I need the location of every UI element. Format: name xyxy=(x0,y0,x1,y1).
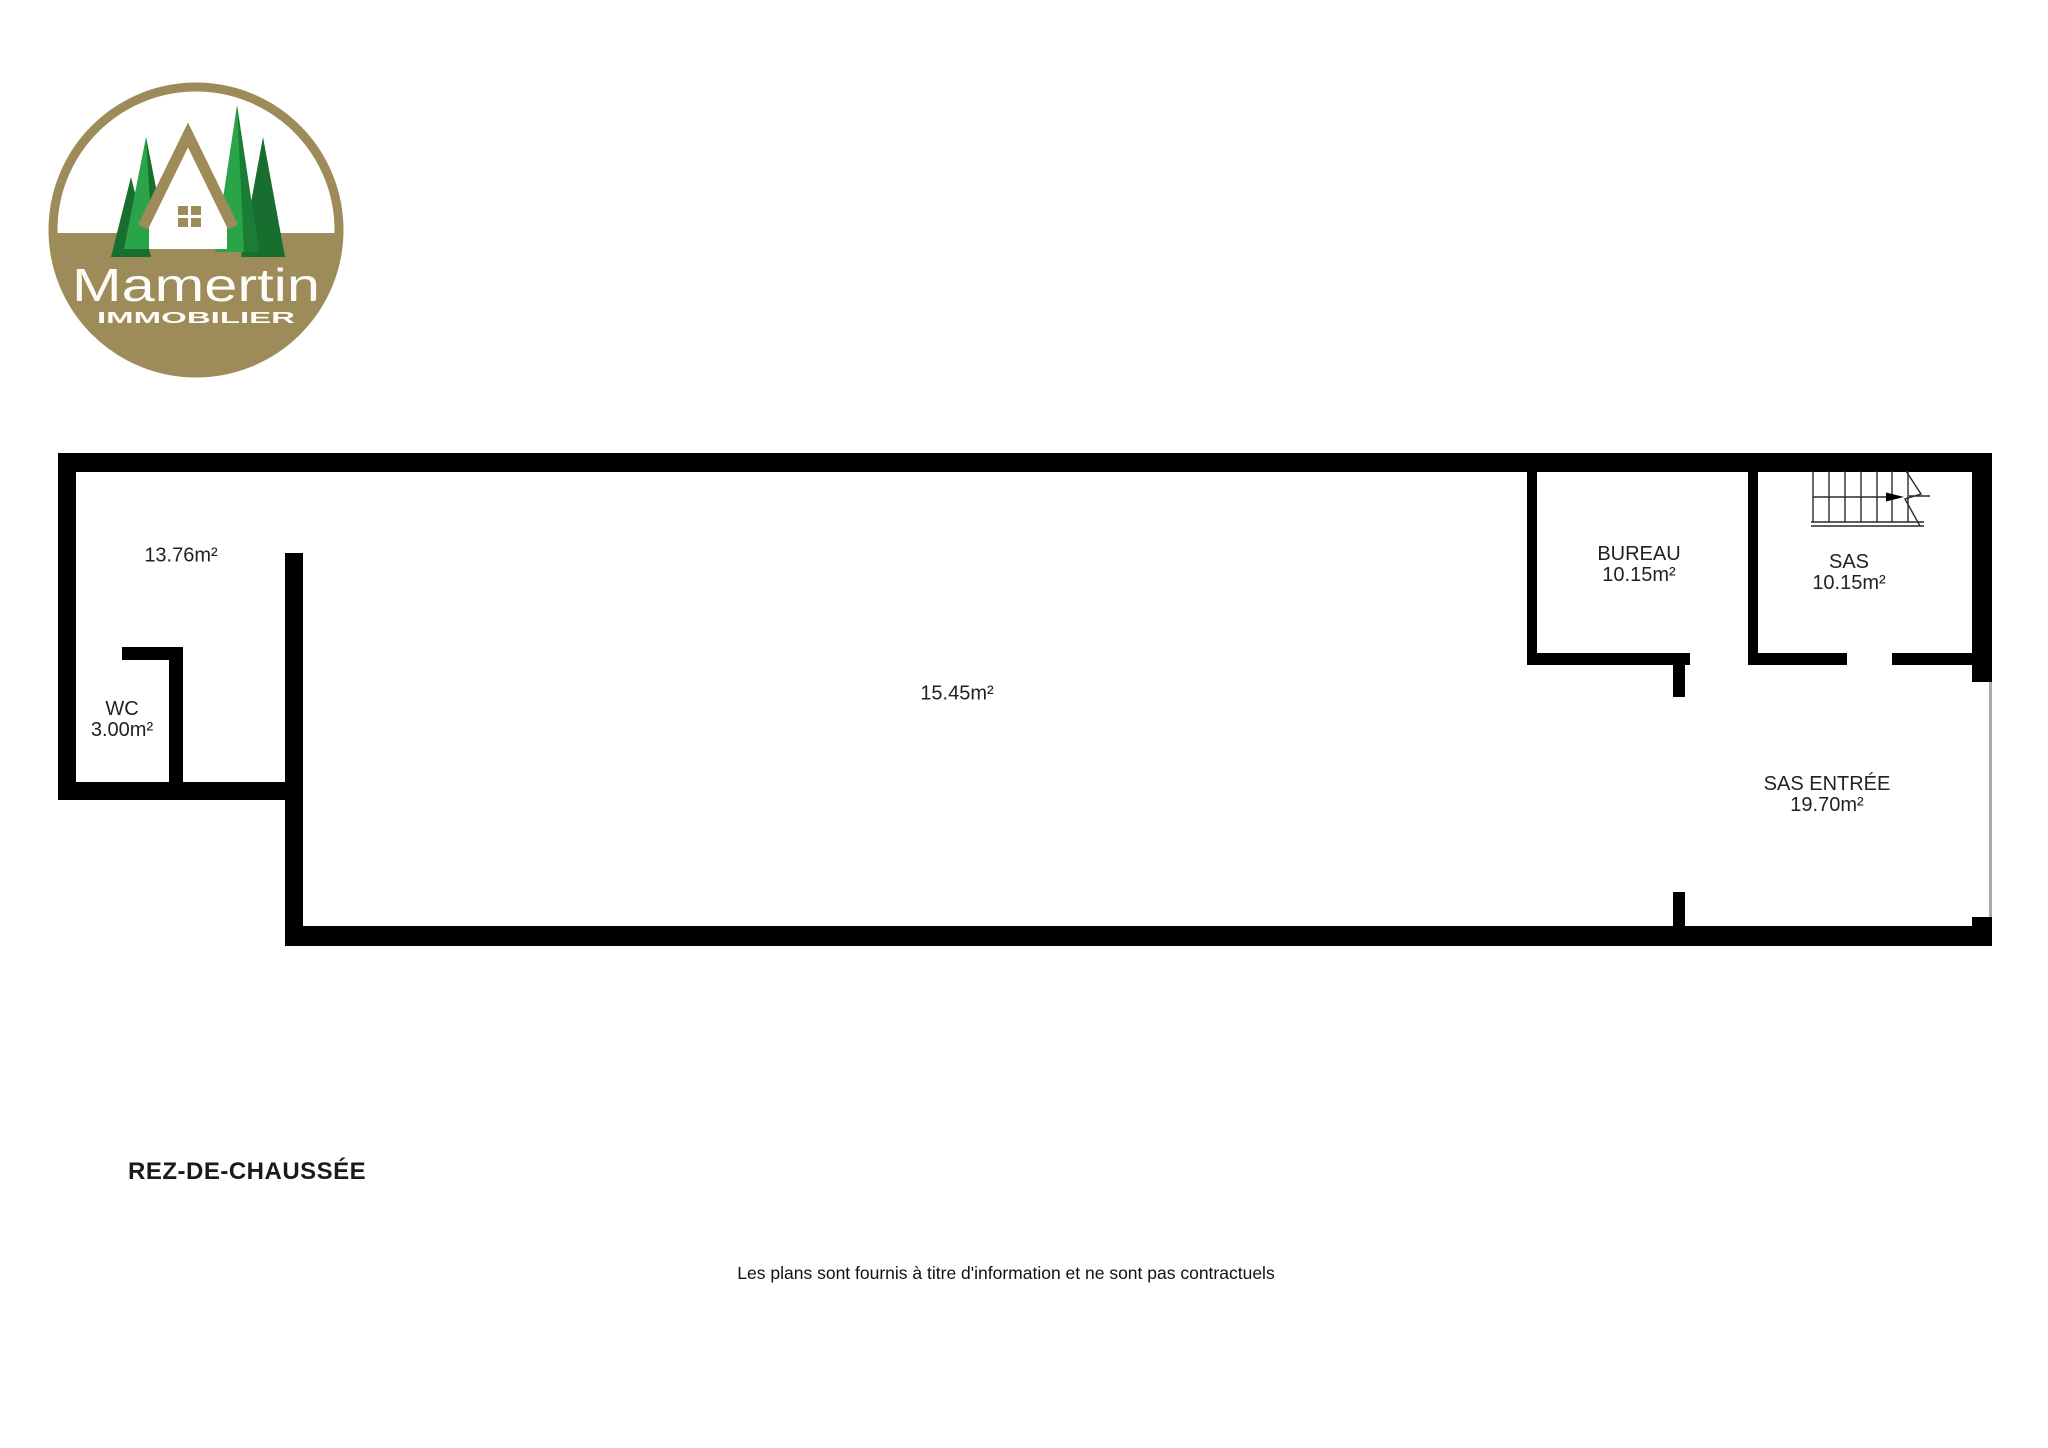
room-area: 19.70m² xyxy=(1764,795,1891,816)
room-name: WC xyxy=(91,699,153,720)
wall-door-jamb-top xyxy=(1673,665,1685,697)
plan-disclaimer: Les plans sont fournis à titre d'informa… xyxy=(737,1263,1274,1284)
logo-tagline-text: IMMOBILIER xyxy=(97,310,295,327)
wall-door-jamb-bottom xyxy=(1673,892,1685,926)
room-area: 3.00m² xyxy=(91,720,153,741)
entrance-glazing-line xyxy=(1989,682,1992,917)
room-area: 10.15m² xyxy=(1812,573,1885,594)
wall-bureau-left xyxy=(1527,472,1537,665)
wall-corner-block xyxy=(1972,917,1992,946)
room-name: SAS xyxy=(1812,552,1885,573)
wall-sas-bottom-left xyxy=(1748,653,1847,665)
room-name: BUREAU xyxy=(1597,544,1680,565)
wall-right xyxy=(1972,453,1992,682)
floor-level-title: REZ-DE-CHAUSSÉE xyxy=(128,1158,366,1186)
agency-logo: Mamertin IMMOBILIER xyxy=(41,77,351,387)
wall-top xyxy=(58,453,1992,472)
room-area: 10.15m² xyxy=(1597,565,1680,586)
stairs-icon xyxy=(1810,470,1932,528)
room-name: SAS ENTRÉE xyxy=(1764,774,1891,795)
wall-sas-bottom-right xyxy=(1892,653,1972,665)
room-area: 15.45m² xyxy=(920,683,993,705)
stairs-direction-arrowhead xyxy=(1886,493,1904,502)
wall-bureau-bottom xyxy=(1527,653,1690,665)
wall-bureau-right xyxy=(1748,472,1758,665)
room-label-wc: WC 3.00m² xyxy=(91,699,153,741)
wall-wc-partition-side xyxy=(169,647,183,783)
room-label-sas: SAS 10.15m² xyxy=(1812,552,1885,594)
logo-brand-text: Mamertin xyxy=(72,259,320,311)
room-area: 13.76m² xyxy=(144,545,217,567)
house-icon xyxy=(143,135,233,249)
wall-left xyxy=(58,453,76,800)
room-label-sas-entree: SAS ENTRÉE 19.70m² xyxy=(1764,774,1891,816)
floor-plan-page: Mamertin IMMOBILIER xyxy=(0,0,2048,1448)
wall-interior-vertical xyxy=(285,553,303,946)
wall-wc-bottom xyxy=(58,782,285,800)
room-label-main: 15.45m² xyxy=(920,684,993,705)
room-label-13-76: 13.76m² xyxy=(144,546,217,567)
wall-bottom xyxy=(285,926,1992,946)
room-label-bureau: BUREAU 10.15m² xyxy=(1597,544,1680,586)
